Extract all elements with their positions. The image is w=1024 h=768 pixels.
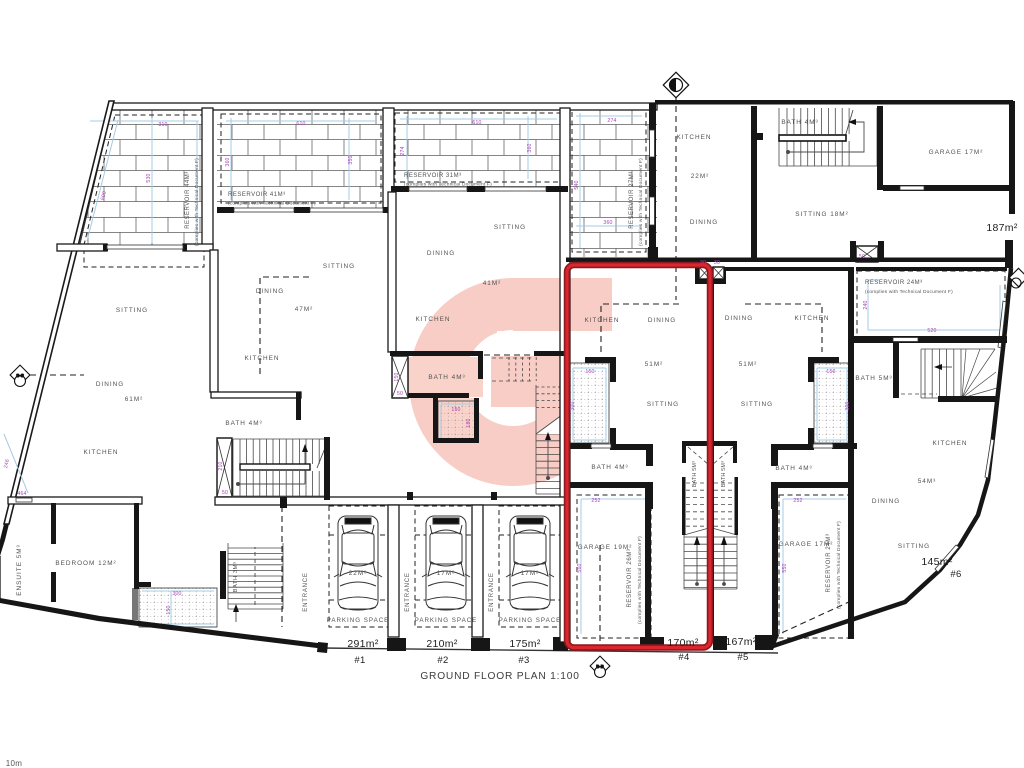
svg-text:291m²: 291m²	[347, 638, 378, 650]
svg-text:274: 274	[400, 146, 406, 155]
svg-text:175m²: 175m²	[509, 638, 540, 650]
svg-text:DINING: DINING	[96, 381, 124, 388]
svg-text:210: 210	[218, 461, 224, 470]
svg-text:17M²: 17M²	[437, 570, 456, 577]
svg-text:DINING: DINING	[725, 315, 753, 322]
svg-text:50: 50	[397, 391, 403, 397]
svg-text:150: 150	[826, 369, 835, 375]
svg-text:BATH 4M³: BATH 4M³	[591, 464, 628, 471]
svg-text:(complies with Technical Docum: (complies with Technical Document F)	[194, 158, 200, 246]
svg-text:SITTING: SITTING	[741, 401, 773, 408]
svg-text:150: 150	[451, 407, 460, 413]
svg-text:22M²: 22M²	[349, 570, 368, 577]
svg-text:GARAGE 19M²: GARAGE 19M²	[578, 544, 633, 551]
svg-text:30: 30	[714, 260, 720, 266]
svg-text:300: 300	[570, 401, 576, 410]
svg-text:RESERVOIR 31M³: RESERVOIR 31M³	[404, 173, 462, 179]
svg-text:(complies with Technical Docum: (complies with Technical Document F)	[836, 521, 842, 609]
svg-text:(complies with Technical Docum: (complies with Technical Document F)	[404, 182, 492, 188]
svg-text:ENTRANCE: ENTRANCE	[489, 572, 495, 611]
svg-text:61M²: 61M²	[125, 396, 144, 403]
svg-text:310: 310	[158, 122, 167, 128]
svg-text:RESERVOIR 24M³: RESERVOIR 24M³	[865, 280, 923, 286]
svg-text:GROUND FLOOR PLAN 1:100: GROUND FLOOR PLAN 1:100	[420, 671, 579, 682]
svg-text:610: 610	[472, 120, 481, 126]
svg-text:KITCHEN: KITCHEN	[244, 355, 279, 362]
svg-text:#3: #3	[518, 655, 529, 666]
svg-text:BATH 4M³: BATH 4M³	[428, 374, 465, 381]
svg-text:240: 240	[863, 300, 869, 309]
svg-text:150: 150	[394, 372, 400, 381]
svg-text:(complies with Technical Docum: (complies with Technical Document F)	[228, 201, 316, 207]
svg-text:PARKING SPACE: PARKING SPACE	[415, 617, 478, 624]
svg-text:DINING: DINING	[256, 288, 284, 295]
svg-text:274: 274	[607, 118, 616, 124]
svg-text:167m²: 167m²	[725, 636, 756, 648]
svg-text:KITCHEN: KITCHEN	[932, 440, 967, 447]
svg-text:10m: 10m	[6, 759, 22, 768]
svg-text:530: 530	[146, 173, 152, 182]
svg-text:BATH 3M³: BATH 3M³	[233, 562, 239, 593]
svg-text:BATH 4M³: BATH 4M³	[225, 420, 262, 427]
svg-text:RESERVOIR 44M³: RESERVOIR 44M³	[185, 171, 191, 229]
svg-text:#1: #1	[354, 655, 365, 666]
svg-text:RESERVOIR 41M³: RESERVOIR 41M³	[228, 192, 286, 198]
svg-text:#5: #5	[737, 652, 748, 663]
svg-text:150: 150	[166, 605, 172, 614]
svg-text:RESERVOIR 24M³: RESERVOIR 24M³	[826, 534, 832, 593]
svg-text:520: 520	[927, 328, 936, 334]
svg-text:SITTING 18M²: SITTING 18M²	[795, 211, 849, 218]
svg-text:252: 252	[591, 498, 600, 504]
svg-text:DINING: DINING	[872, 498, 900, 505]
svg-text:41M²: 41M²	[483, 280, 502, 287]
svg-text:KITCHEN: KITCHEN	[676, 134, 711, 141]
svg-text:170m²: 170m²	[667, 637, 698, 649]
svg-text:(complies with Technical Docum: (complies with Technical Document F)	[638, 158, 644, 246]
svg-text:PARKING SPACE: PARKING SPACE	[499, 617, 562, 624]
svg-text:30: 30	[700, 260, 706, 266]
svg-text:SITTING: SITTING	[323, 263, 355, 270]
svg-text:50: 50	[222, 490, 228, 496]
svg-text:ENSUITE 5M³: ENSUITE 5M³	[16, 544, 23, 595]
svg-text:BEDROOM 12M²: BEDROOM 12M²	[55, 560, 116, 567]
svg-text:KITCHEN: KITCHEN	[794, 315, 829, 322]
svg-text:S-S: S-S	[16, 373, 24, 378]
svg-text:BATH 4M³: BATH 4M³	[775, 465, 812, 472]
svg-text:252: 252	[793, 498, 802, 504]
svg-text:PARKING SPACE: PARKING SPACE	[327, 617, 390, 624]
svg-text:RESERVOIR 26M³: RESERVOIR 26M³	[627, 549, 633, 608]
svg-text:610: 610	[296, 121, 305, 127]
svg-text:#6: #6	[950, 569, 961, 580]
svg-text:210m²: 210m²	[426, 638, 457, 650]
svg-text:DINING: DINING	[690, 219, 718, 226]
svg-text:187m²: 187m²	[986, 222, 1017, 234]
svg-text:50: 50	[859, 254, 865, 260]
svg-text:51M²: 51M²	[739, 361, 758, 368]
svg-text:54M³: 54M³	[918, 478, 937, 485]
svg-text:BATH 5M³: BATH 5M³	[721, 461, 727, 487]
svg-text:SITTING: SITTING	[898, 543, 930, 550]
svg-text:300: 300	[172, 591, 181, 597]
svg-text:(complies with Technical Docum: (complies with Technical Document F)	[865, 289, 953, 295]
svg-text:360: 360	[603, 220, 612, 226]
svg-text:300: 300	[845, 401, 851, 410]
svg-text:47M²: 47M²	[295, 306, 314, 313]
svg-text:17M²: 17M²	[521, 570, 540, 577]
svg-text:22M²: 22M²	[691, 173, 710, 180]
svg-text:BATH 4M³: BATH 4M³	[781, 119, 818, 126]
svg-text:ENTRANCE: ENTRANCE	[405, 572, 411, 611]
svg-text:SITTING: SITTING	[116, 307, 148, 314]
svg-text:DINING: DINING	[648, 317, 676, 324]
svg-text:B-B: B-B	[596, 664, 604, 669]
svg-text:150: 150	[585, 369, 594, 375]
svg-text:464: 464	[17, 491, 26, 497]
svg-text:#2: #2	[437, 655, 448, 666]
svg-text:BATH 5M³: BATH 5M³	[692, 461, 698, 487]
svg-text:SITTING: SITTING	[494, 224, 526, 231]
svg-text:KITCHEN: KITCHEN	[83, 449, 118, 456]
svg-text:KITCHEN: KITCHEN	[415, 316, 450, 323]
svg-text:550: 550	[782, 563, 788, 572]
svg-text:#4: #4	[678, 652, 689, 663]
svg-text:540: 540	[574, 180, 580, 189]
svg-text:RESERVOIR 27M³: RESERVOIR 27M³	[629, 171, 635, 229]
svg-text:51M²: 51M²	[645, 361, 664, 368]
svg-text:SITTING: SITTING	[647, 401, 679, 408]
svg-text:GARAGE 17M²: GARAGE 17M²	[929, 149, 984, 156]
svg-text:(complies with Technical Docum: (complies with Technical Document F)	[637, 536, 643, 624]
svg-text:BATH 5M³: BATH 5M³	[855, 375, 892, 382]
svg-text:180: 180	[466, 418, 472, 427]
svg-text:560: 560	[577, 563, 583, 572]
svg-text:KITCHEN: KITCHEN	[584, 317, 619, 324]
svg-text:360: 360	[527, 143, 533, 152]
svg-text:360: 360	[225, 157, 231, 166]
svg-text:145m²: 145m²	[921, 556, 952, 568]
svg-text:ENTRANCE: ENTRANCE	[303, 572, 309, 611]
svg-text:350: 350	[348, 155, 354, 164]
svg-text:DINING: DINING	[427, 250, 455, 257]
